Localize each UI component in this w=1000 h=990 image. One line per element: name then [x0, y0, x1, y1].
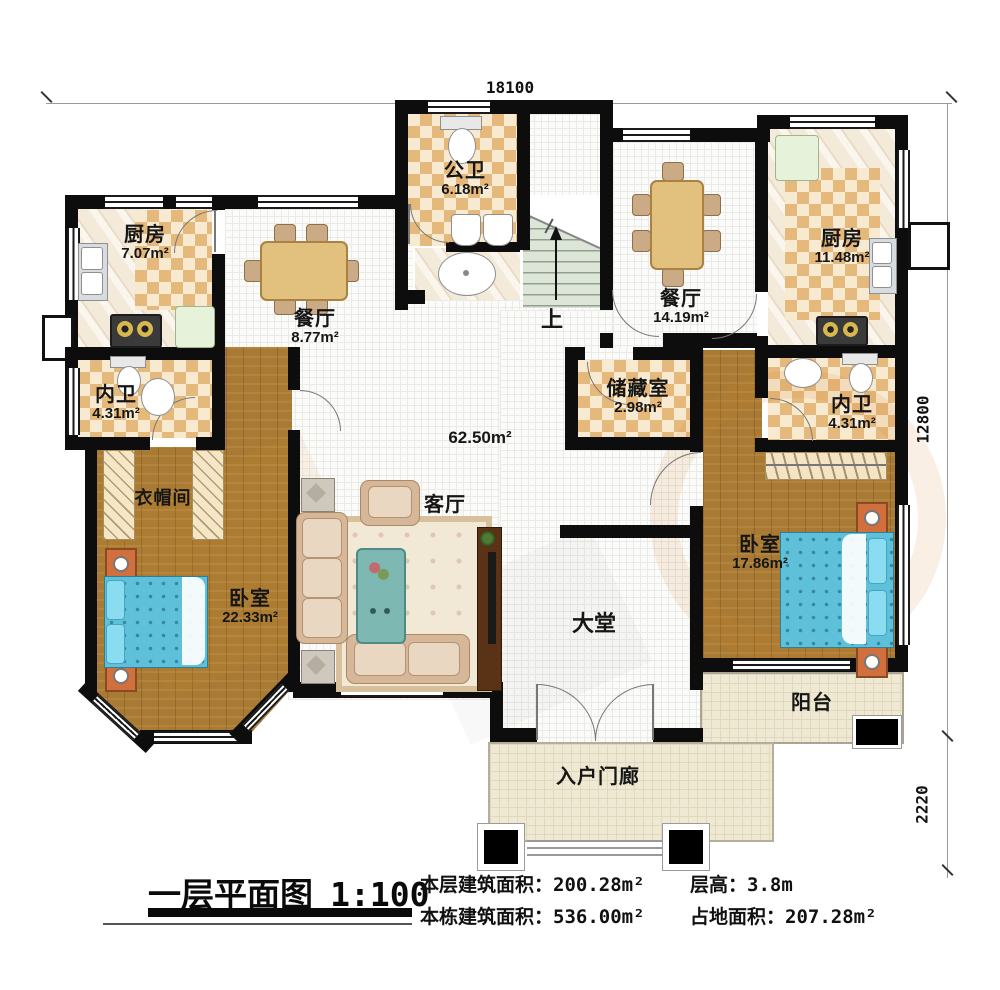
wall — [755, 128, 768, 292]
room-area: 4.31m² — [810, 416, 894, 433]
room-label-bedroom-left: 卧室 22.33m² — [202, 588, 298, 627]
room-label-hall: 大堂 — [556, 612, 632, 637]
room-label-porch: 入户门廊 — [540, 766, 656, 788]
pillow — [106, 624, 125, 664]
room-area: 7.07m² — [100, 246, 190, 263]
plant — [480, 531, 495, 546]
wall — [600, 333, 613, 348]
window-box — [908, 222, 950, 270]
room-area: 2.98m² — [588, 400, 688, 417]
room-label-living: 客厅 — [410, 494, 480, 516]
room-name: 卧室 — [712, 534, 808, 556]
room-label-kitchen-right: 厨房 11.48m² — [796, 228, 888, 267]
room-label-bath-left: 内卫 4.31m² — [74, 384, 158, 423]
stove — [816, 316, 868, 346]
door-leaf — [408, 204, 410, 244]
wall — [212, 195, 225, 210]
room-name: 厨房 — [796, 228, 888, 250]
lamp — [864, 654, 880, 670]
stat-label: 占地面积： — [690, 907, 785, 928]
wall — [895, 358, 908, 445]
wall — [288, 347, 300, 390]
room-label-balcony: 阳台 — [776, 692, 848, 714]
room-area: 11.48m² — [796, 250, 888, 267]
window — [623, 128, 690, 142]
wall — [560, 525, 690, 538]
wall — [565, 347, 578, 450]
sofa-cushion — [302, 518, 342, 558]
burner — [137, 321, 153, 337]
dimension-tick — [40, 91, 52, 103]
wall — [755, 345, 908, 358]
toilet-bowl — [849, 363, 873, 393]
porch-step — [527, 854, 663, 856]
window — [258, 195, 358, 209]
stat-floor-area: 本层建筑面积：200.28m² — [420, 870, 645, 897]
window — [897, 505, 910, 645]
dimension-tick — [945, 91, 957, 103]
room-label-dining-right: 餐厅 14.19m² — [638, 288, 724, 327]
door-leaf — [214, 210, 216, 252]
side-table-decor — [306, 483, 326, 503]
stat-building-area: 本栋建筑面积：536.00m² — [420, 902, 645, 929]
stove — [110, 314, 162, 348]
toilet-bowl — [448, 128, 476, 164]
burner — [843, 322, 858, 337]
room-name: 内卫 — [74, 384, 158, 406]
stat-value: 207.28m² — [785, 906, 877, 928]
sofa-cushion — [302, 598, 342, 638]
wall — [212, 347, 225, 450]
burner — [117, 321, 133, 337]
wall — [690, 347, 703, 452]
window — [897, 150, 910, 228]
dimension-line-right — [947, 103, 948, 878]
coffee-table — [356, 548, 406, 644]
door-leaf — [652, 684, 654, 740]
wall — [565, 437, 703, 450]
porch-step — [527, 847, 663, 849]
dimension-top-label: 18100 — [470, 78, 550, 97]
stat-value: 200.28m² — [553, 874, 645, 896]
pillow — [106, 580, 125, 620]
wall — [755, 440, 908, 452]
table-decor — [370, 608, 376, 614]
room-name: 餐厅 — [272, 308, 358, 330]
wall — [600, 114, 613, 310]
lamp — [113, 556, 129, 572]
nightstand — [856, 502, 888, 534]
stat-footprint-area: 占地面积：207.28m² — [690, 902, 877, 929]
wall — [85, 437, 97, 692]
nightstand — [856, 646, 888, 678]
sink-basin — [872, 266, 892, 288]
floor-plan-canvas: 18100 12800 2220 — [0, 0, 1000, 990]
chair — [702, 194, 721, 216]
window — [105, 195, 163, 209]
room-label-bedroom-right: 卧室 17.86m² — [712, 534, 808, 573]
stairs-direction-arrow — [555, 238, 557, 300]
tv — [488, 552, 496, 644]
room-area: 14.19m² — [638, 310, 724, 327]
urinal — [483, 214, 513, 246]
burner — [823, 322, 838, 337]
room-label-storage: 储藏室 2.98m² — [588, 378, 688, 417]
chair — [662, 162, 684, 181]
room-name: 厨房 — [100, 224, 190, 246]
title-underline-thin — [103, 923, 412, 925]
fridge — [775, 135, 819, 181]
stat-value: 536.00m² — [553, 906, 645, 928]
room-area: 17.86m² — [712, 556, 808, 573]
room-name: 储藏室 — [588, 378, 688, 400]
pillow — [868, 538, 887, 584]
living-area-label: 62.50m² — [428, 428, 532, 447]
sink-basin — [81, 272, 103, 295]
room-name: 衣帽间 — [128, 488, 198, 508]
dining-table — [650, 180, 704, 270]
window — [733, 659, 850, 671]
counter — [175, 306, 215, 348]
room-area: 4.31m² — [74, 406, 158, 423]
wall — [395, 290, 425, 304]
chair — [632, 230, 651, 252]
porch-column — [478, 824, 524, 870]
door-leaf — [536, 684, 538, 740]
wall — [653, 728, 703, 742]
sofa-cushion — [302, 558, 342, 598]
chair — [702, 230, 721, 252]
sink-drain — [463, 270, 469, 276]
room-name: 内卫 — [810, 394, 894, 416]
bed-sheet — [842, 534, 866, 644]
closet-rack — [765, 452, 887, 480]
chair — [632, 194, 651, 216]
stat-label: 本栋建筑面积： — [420, 907, 553, 928]
stairs-up-label: 上 — [532, 308, 572, 333]
porch-step — [527, 840, 663, 842]
side-table — [301, 650, 335, 684]
wall — [663, 333, 757, 348]
room-area: 22.33m² — [202, 610, 298, 627]
wall — [755, 345, 768, 398]
stat-label: 层高： — [690, 875, 747, 896]
wall — [65, 437, 150, 450]
chair — [662, 268, 684, 287]
lamp — [864, 510, 880, 526]
stat-value: 3.8m — [747, 874, 793, 896]
stat-floor-height: 层高：3.8m — [690, 870, 793, 897]
side-table-decor — [306, 655, 326, 675]
armchair-cushion — [368, 486, 412, 518]
room-area: 6.18m² — [420, 182, 510, 199]
window — [428, 100, 490, 114]
pillow — [868, 590, 887, 636]
dining-table — [260, 241, 348, 301]
porch-column — [663, 824, 709, 870]
room-label-kitchen-left: 厨房 7.07m² — [100, 224, 190, 263]
sofa-cushion — [408, 642, 460, 676]
lamp — [113, 668, 129, 684]
stat-label: 本层建筑面积： — [420, 875, 553, 896]
room-label-bath-right: 内卫 4.31m² — [810, 394, 894, 433]
balcony-column — [853, 716, 901, 748]
bay-window — [154, 731, 238, 743]
sink — [784, 358, 822, 388]
window — [790, 115, 875, 129]
room-area: 8.77m² — [272, 330, 358, 347]
side-table — [301, 478, 335, 512]
room-name: 卧室 — [202, 588, 298, 610]
room-label-public-bath: 公卫 6.18m² — [420, 160, 510, 199]
wall — [490, 728, 537, 742]
room-name: 公卫 — [420, 160, 510, 182]
room-label-dining-left: 餐厅 8.77m² — [272, 308, 358, 347]
porch-floor — [488, 742, 774, 842]
dimension-right-lower-label: 2220 — [913, 773, 932, 837]
room-label-cloakroom: 衣帽间 — [128, 488, 198, 508]
table-decor — [384, 608, 390, 614]
room-name: 餐厅 — [638, 288, 724, 310]
title-underline-bar — [148, 908, 412, 917]
wall — [517, 114, 530, 250]
urinal — [451, 214, 481, 246]
sofa-cushion — [354, 642, 406, 676]
stairs-arrow-head — [550, 226, 562, 240]
